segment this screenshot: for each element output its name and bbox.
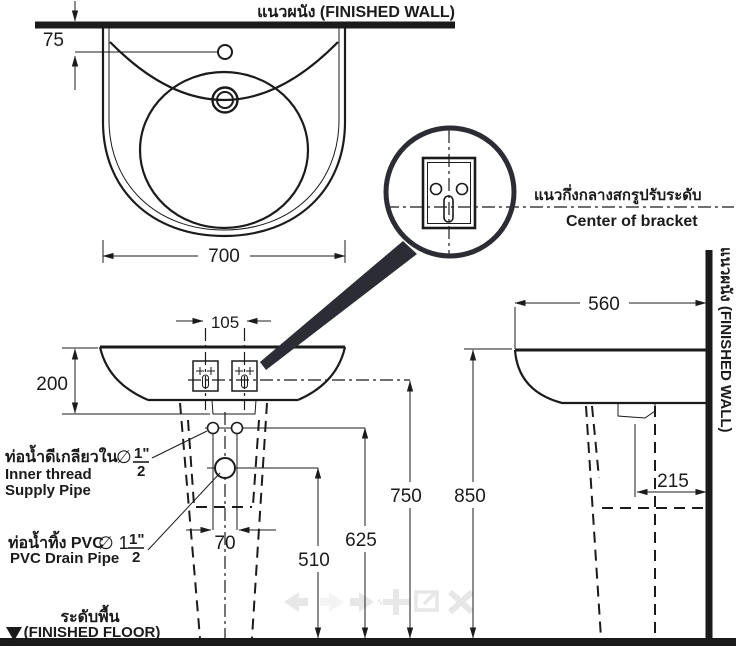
dim-drain-height: 510 — [298, 550, 330, 571]
supply-label-en1: Inner thread — [5, 466, 92, 483]
close-icon[interactable] — [450, 592, 472, 612]
dim-rim-height: 850 — [454, 486, 486, 507]
supply-pipe-left — [208, 423, 219, 434]
drain-label-thai: ท่อน้ำทิ้ง PVC — [8, 530, 104, 552]
watermark-toolbar — [284, 589, 472, 615]
dim-wall-to-hole: 75 — [43, 30, 64, 51]
dim-supply-height: 625 — [345, 530, 377, 551]
floor-label-english: (FINISHED FLOOR) — [24, 624, 161, 641]
top-view — [75, 27, 345, 236]
dim-depth: 560 — [588, 294, 620, 315]
drain-fraction-numerator: 1" — [129, 531, 144, 548]
drawing-svg: แนวผนัง (FINISHED WALL) แนวผนัง (FINISHE… — [0, 0, 736, 653]
next-arrow-icon[interactable] — [350, 592, 374, 612]
supply-label-en2: Supply Pipe — [5, 482, 91, 499]
dim-basin-height: 200 — [36, 374, 68, 395]
magnifier-circle — [386, 128, 514, 256]
dim-bracket-height: 750 — [390, 486, 422, 507]
dim-drain-offset: 215 — [657, 471, 689, 492]
prev-arrow-icon[interactable] — [284, 592, 308, 612]
dim-bracket-span: 105 — [211, 313, 239, 332]
side-basin-body — [515, 350, 708, 403]
supply-leader — [152, 431, 207, 458]
basin-bowl — [140, 72, 308, 228]
drain-leader — [148, 473, 220, 550]
bracket-detail-magnifier: แนวกึ่งกลางสกรูปรับระดับ Center of brack… — [260, 128, 734, 370]
dim-supply-span: 70 — [214, 533, 235, 554]
technical-drawing-basin-installation: แนวผนัง (FINISHED WALL) แนวผนัง (FINISHE… — [0, 0, 736, 653]
side-pedestal-dashed — [586, 406, 707, 638]
side-trap — [618, 403, 655, 418]
front-view — [100, 328, 410, 640]
faucet-hole — [218, 45, 232, 59]
front-basin-body — [100, 347, 345, 400]
side-view — [515, 350, 708, 638]
front-neck — [212, 400, 256, 414]
next-arrow-icon-faint[interactable] — [320, 592, 344, 612]
floor-label-thai: ระดับพื้น — [60, 604, 119, 626]
drain-label-en: PVC Drain Pipe — [10, 550, 119, 567]
wall-right-label: แนวผนัง (FINISHED WALL) — [717, 247, 734, 433]
supply-fraction-numerator: 1" — [134, 445, 149, 462]
bracket-label-thai: แนวกึ่งกลางสกรูปรับระดับ — [534, 184, 702, 205]
supply-pipe-label: ท่อน้ำดีเกลียวใน ∅ 1" 2 Inner thread Sup… — [5, 431, 207, 499]
drain-fraction-denominator: 2 — [132, 549, 140, 566]
wall-top-label: แนวผนัง (FINISHED WALL) — [257, 3, 455, 21]
magnifier-handle — [260, 241, 417, 370]
supply-fraction-denominator: 2 — [137, 463, 145, 480]
move-icon[interactable] — [377, 589, 409, 615]
supply-pipe-right — [232, 423, 243, 434]
supply-diameter-symbol: ∅ — [116, 447, 132, 467]
supply-label-thai: ท่อน้ำดีเกลียวใน — [5, 444, 118, 466]
bracket-label-english: Center of bracket — [566, 213, 698, 230]
resize-icon[interactable] — [416, 592, 437, 610]
dim-width: 700 — [208, 246, 240, 267]
